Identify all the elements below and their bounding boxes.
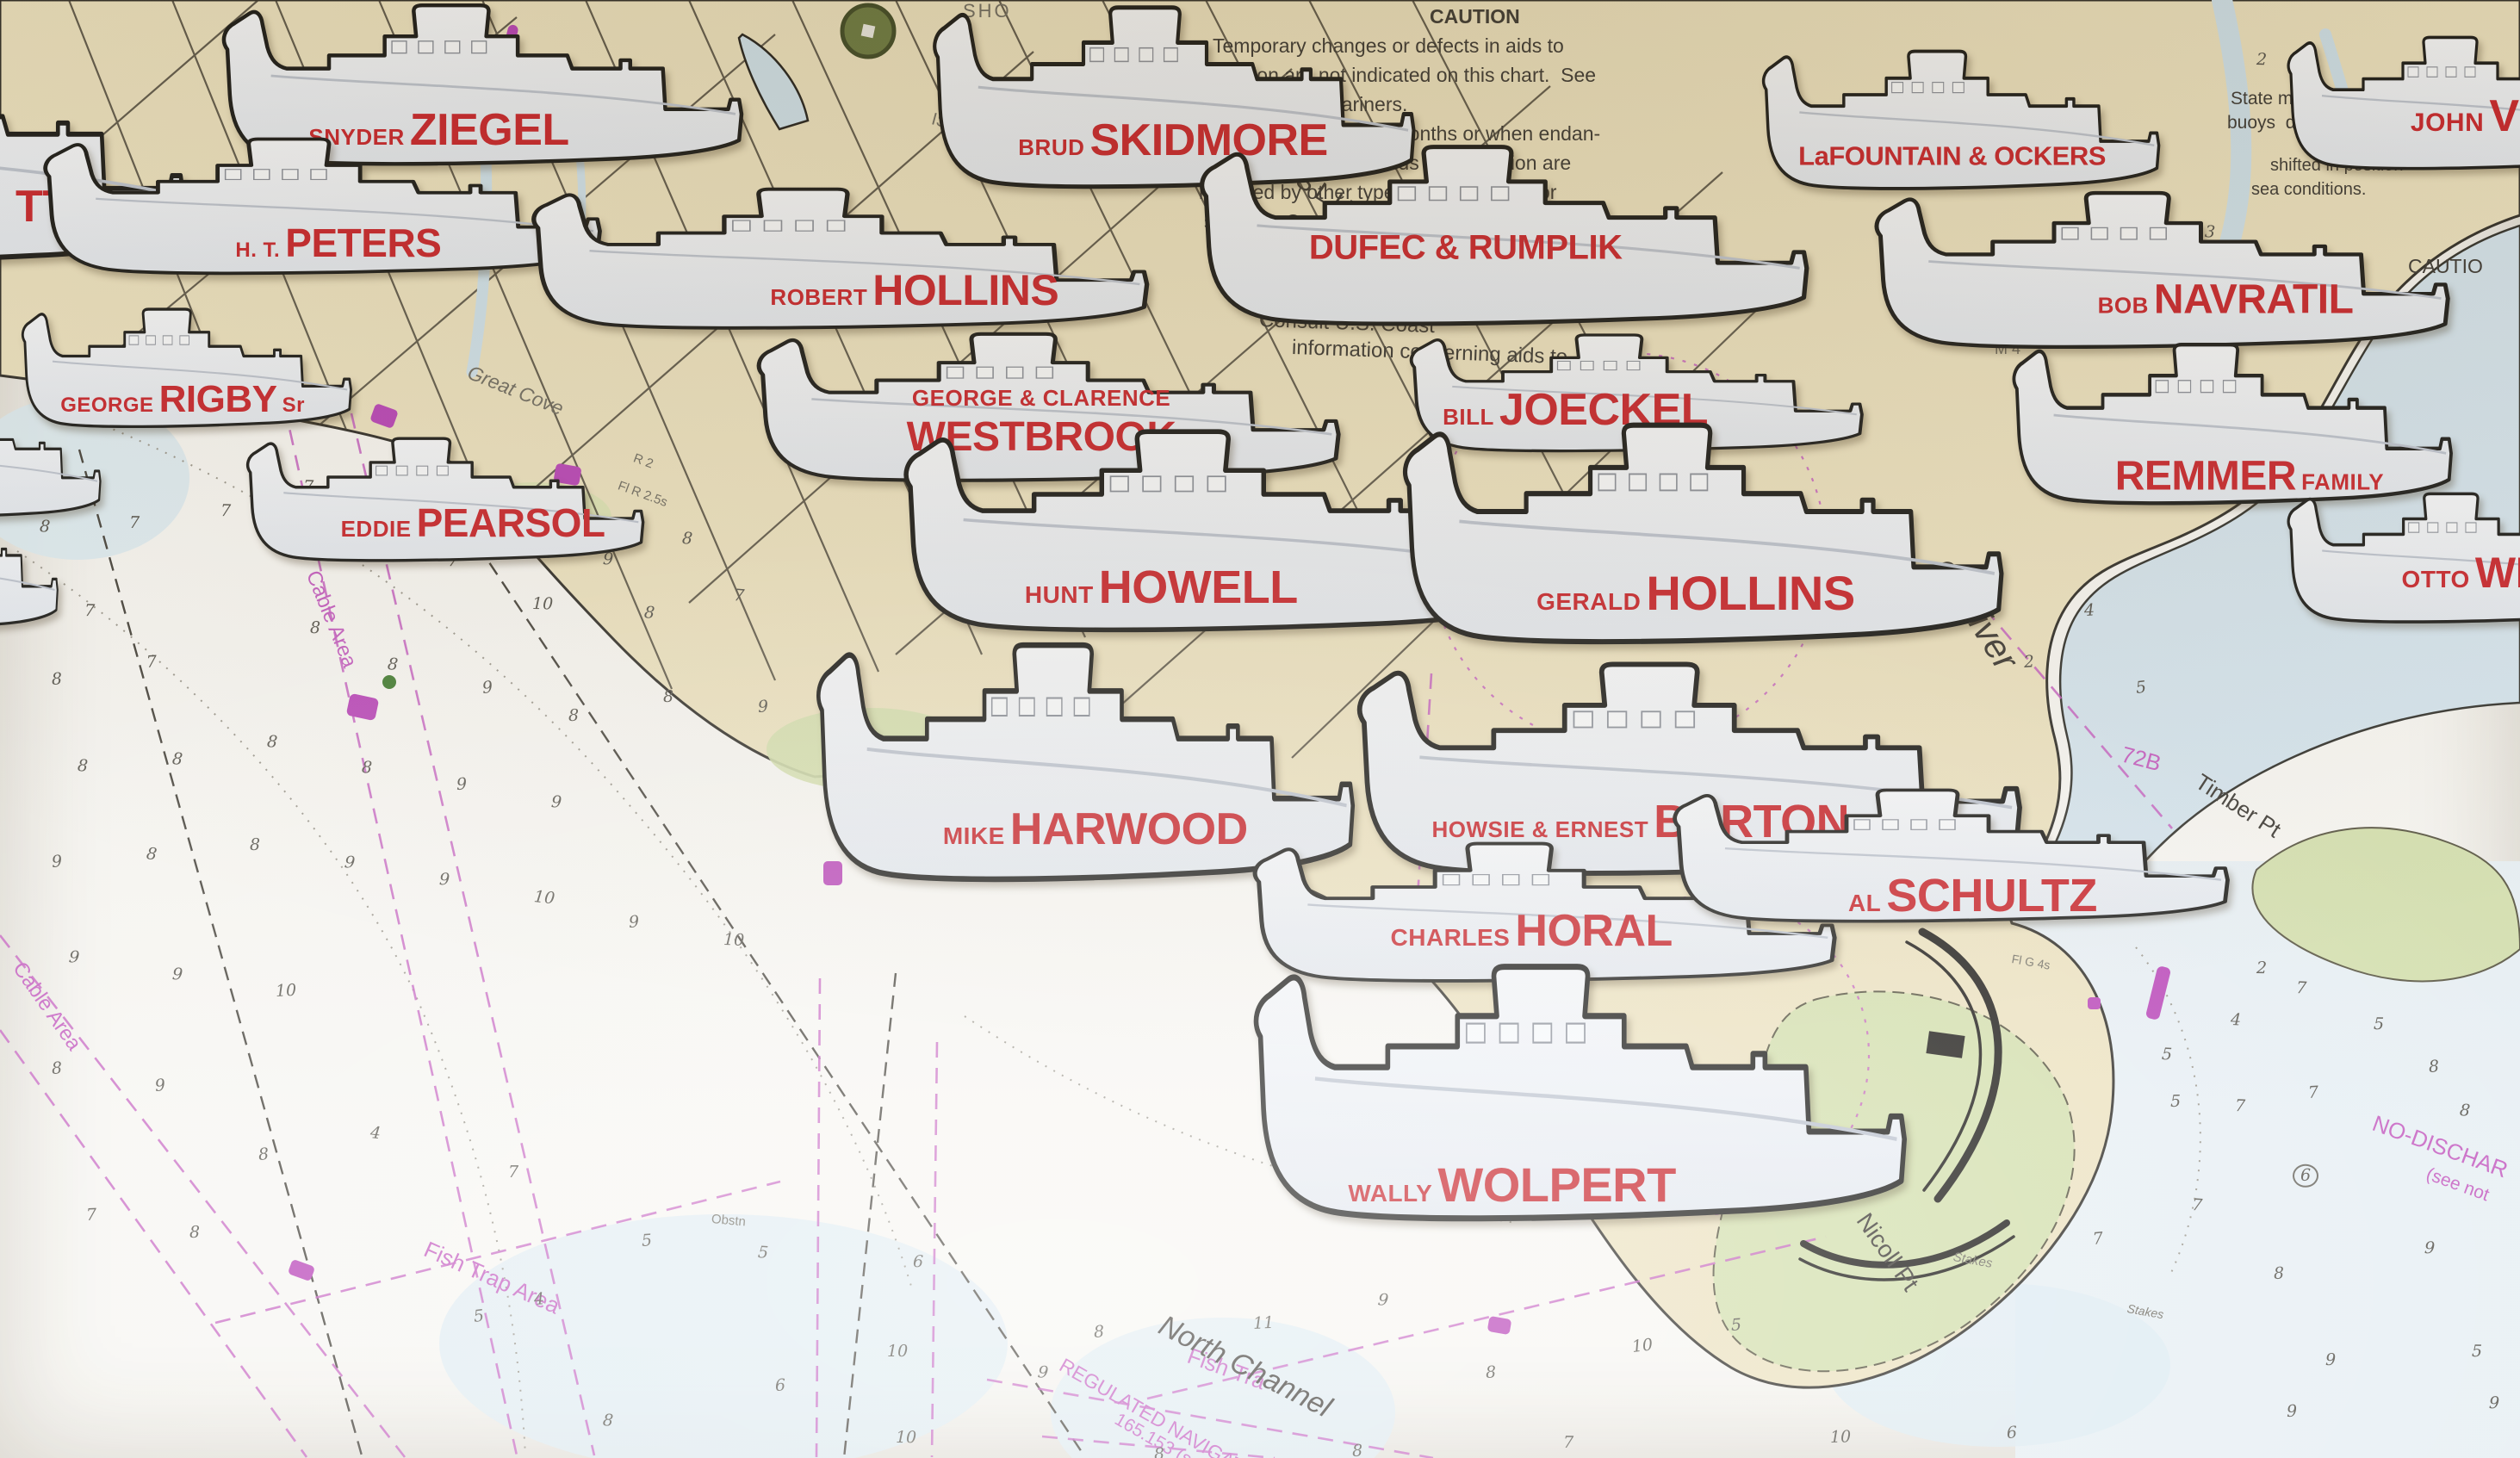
boat-first-name: AL <box>1848 890 1881 917</box>
boat-name-plate-lafountain: LaFOUNTAIN & OCKERS <box>1757 48 2163 203</box>
boat-name-plate-peters: H. T. PETERS <box>36 136 606 288</box>
boat-name-plate-fragment <box>0 505 60 641</box>
boat-name-text: LaFOUNTAIN & OCKERS <box>1798 140 2106 171</box>
tugboat-silhouette <box>0 505 60 641</box>
boat-name-text: CHARLES HORAL <box>1391 905 1673 957</box>
boat-last-name: WOLPERT <box>1437 1157 1675 1213</box>
boat-name-plate-wolpert: WALLY WOLPERT <box>1245 961 1912 1245</box>
boat-last-name: HARWOOD <box>1010 803 1248 855</box>
boat-last-name: NAVRATIL <box>2154 276 2354 324</box>
boat-name-suffix: Sr <box>282 394 305 418</box>
boat-name-text: EDDIE PEARSOL <box>341 499 605 546</box>
boat-last-name: LaFOUNTAIN & OCKERS <box>1798 140 2106 171</box>
boat-last-name: VE <box>2489 90 2520 142</box>
boat-first-name: GERALD <box>1536 588 1641 616</box>
boat-last-name: DUFEC & RUMPLIK <box>1309 229 1623 268</box>
boat-name-plates-layer: TTS SNYDER ZIEGEL <box>0 0 2520 1458</box>
boat-last-name: HOWELL <box>1099 561 1298 614</box>
boat-last-name: RIGBY <box>159 378 277 421</box>
boat-first-name: CHARLES <box>1391 924 1511 952</box>
boat-first-name: OTTO <box>2402 566 2470 593</box>
boat-name-text: OTTO WE <box>2402 548 2520 598</box>
boat-first-name: HOWSIE & ERNEST <box>1431 816 1648 843</box>
boat-name-text: GERALD HOLLINS <box>1536 565 1855 621</box>
boat-first-name: JOHN <box>2411 109 2484 138</box>
boat-last-name: HOLLINS <box>872 265 1058 315</box>
boat-name-text: HUNT HOWELL <box>1025 561 1298 614</box>
boat-first-name: HUNT <box>1025 581 1094 609</box>
boat-name-plate-otto: OTTO WE <box>2282 491 2520 636</box>
boat-name-plate-hollins-robert: ROBERT HOLLINS <box>524 186 1154 343</box>
boat-name-text: H. T. PETERS <box>235 220 441 266</box>
boat-last-name: SCHULTZ <box>1886 869 2096 922</box>
boat-name-plate-schultz: AL SCHULTZ <box>1666 787 2234 935</box>
boat-last-name: WE <box>2475 548 2520 598</box>
boat-first-name: GEORGE & CLARENCE <box>912 386 1170 413</box>
boat-last-name: PETERS <box>285 220 441 266</box>
boat-name-text: BOB NAVRATIL <box>2098 276 2354 324</box>
boat-name-text: MIKE HARWOOD <box>943 803 1248 855</box>
boat-first-name: BOB <box>2098 293 2149 320</box>
hull-outline <box>0 404 100 517</box>
nautical-chart-photo: CAUTIONTemporary changes or defects in a… <box>0 0 2520 1458</box>
tugboat-silhouette <box>1757 48 2163 203</box>
boat-first-name: BRUD <box>1018 134 1084 161</box>
boat-first-name: ROBERT <box>770 284 867 311</box>
boat-name-plate-navratil: BOB NAVRATIL <box>1867 189 2455 363</box>
boat-last-name: HOLLINS <box>1646 565 1854 621</box>
boat-name-plate-pearsol: EDDIE PEARSOL <box>241 436 648 574</box>
boat-name-plate-dufec: DUFEC & RUMPLIK <box>1192 143 1814 343</box>
tugboat-silhouette <box>1395 420 2008 665</box>
boat-last-name: PEARSOL <box>417 499 605 546</box>
boat-first-name: H. T. <box>235 239 280 263</box>
boat-last-name: HORAL <box>1515 905 1672 957</box>
boat-name-plate-hollins-gerald: GERALD HOLLINS <box>1395 420 2008 665</box>
boat-name-text: WALLY WOLPERT <box>1348 1157 1675 1213</box>
boat-first-name: EDDIE <box>341 516 412 543</box>
boat-last-name: REMMER <box>2115 452 2296 499</box>
boat-name-text: JOHN VE <box>2411 90 2520 142</box>
boat-first-name: WALLY <box>1348 1180 1432 1207</box>
boat-name-plate-johnve: JOHN VE <box>2282 34 2520 183</box>
boat-name-text: DUFEC & RUMPLIK <box>1309 229 1623 268</box>
boat-name-text: AL SCHULTZ <box>1848 869 2097 922</box>
boat-first-name: MIKE <box>943 822 1005 850</box>
boat-name-text: ROBERT HOLLINS <box>770 265 1058 315</box>
hull-outline <box>1877 193 2448 347</box>
hull-outline <box>0 507 58 628</box>
